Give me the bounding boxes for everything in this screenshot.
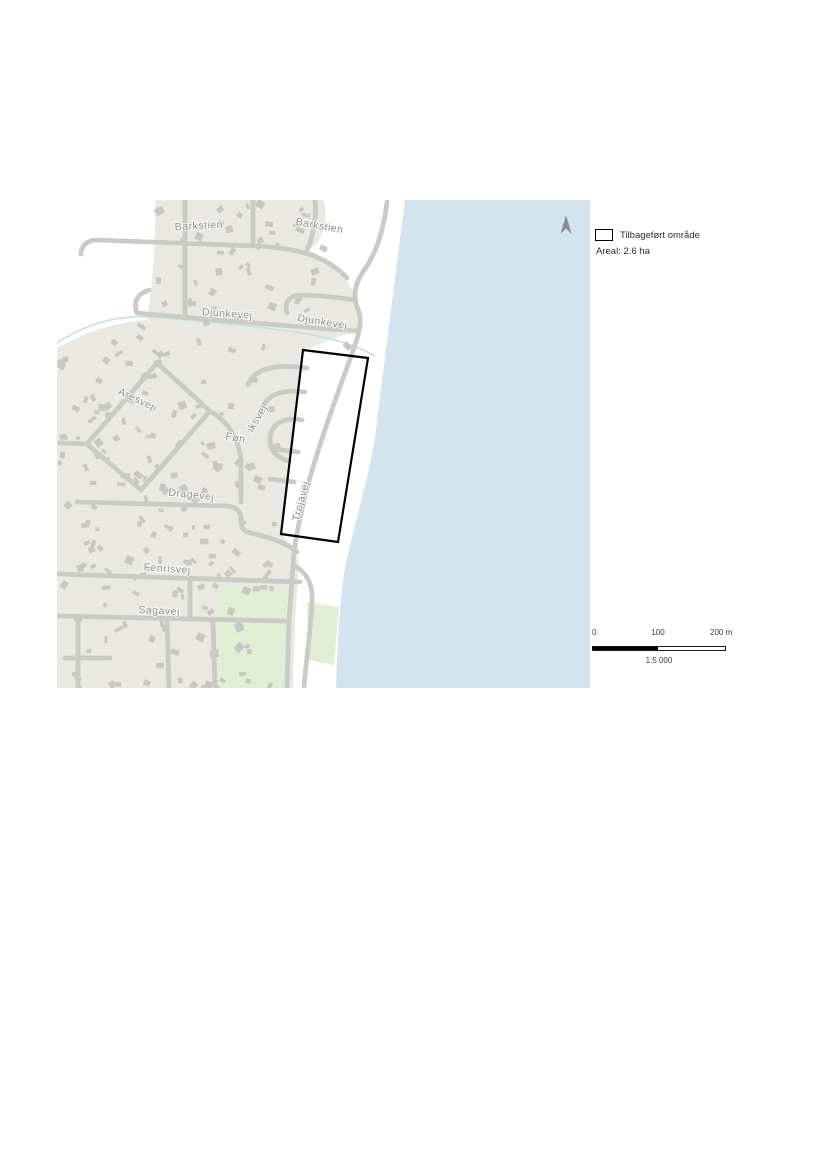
building-footprint [247,649,252,654]
building-footprint [215,463,224,470]
scale-ratio-label: 1:5 000 [592,656,726,665]
building-footprint [76,436,80,440]
scale-bar-graphic [592,646,726,651]
building-footprint [94,410,99,414]
building-footprint [81,523,86,528]
building-footprint [95,527,99,531]
building-footprint [177,677,183,683]
building-footprint [311,278,316,286]
building-footprint [203,524,210,529]
building-footprint [134,472,138,476]
map-canvas: BarkstienBarkstienDjunkevejDjunkevejAres… [57,200,590,688]
scale-bar: 0 100 200 m 1:5 000 [592,628,742,665]
building-footprint [272,522,277,526]
scale-bar-ticks: 0 100 200 m [592,628,742,639]
building-footprint [60,452,65,459]
building-footprint [215,268,222,276]
building-footprint [245,679,250,684]
legend-swatch-boundary [595,229,613,241]
legend-item: Tilbageført område [595,229,775,241]
building-footprint [143,476,147,481]
building-footprint [156,663,164,668]
scale-bar-filled-segment [593,647,658,650]
scale-tick-0: 0 [592,628,596,637]
legend-area-label: Areal: 2.6 ha [596,246,775,257]
building-footprint [217,250,224,254]
building-footprint [200,539,208,545]
legend-item-label: Tilbageført område [620,230,700,241]
building-footprint [183,533,188,537]
building-footprint [192,525,195,530]
building-footprint [104,636,107,643]
scale-tick-100: 100 [644,628,672,637]
building-footprint [90,481,97,486]
scale-tick-200: 200 m [710,628,744,637]
building-footprint [269,586,274,592]
building-footprint [269,231,275,235]
building-footprint [260,585,267,589]
building-footprint [228,403,235,409]
north-arrow-icon [557,213,575,239]
page-background: BarkstienBarkstienDjunkevejDjunkevejAres… [0,0,827,1169]
building-footprint [137,521,142,527]
building-footprint [122,418,126,425]
building-footprint [209,554,216,559]
building-footprint [201,441,204,444]
street-label-barkstien: Barkstien [174,219,223,234]
map-legend: Tilbageført område Areal: 2.6 ha [595,229,775,257]
building-footprint [57,461,61,466]
building-footprint [156,277,161,284]
building-footprint [217,573,221,576]
street-label-sagavej: Sagavej [138,604,180,618]
building-footprint [125,360,133,366]
building-footprint [253,586,260,591]
